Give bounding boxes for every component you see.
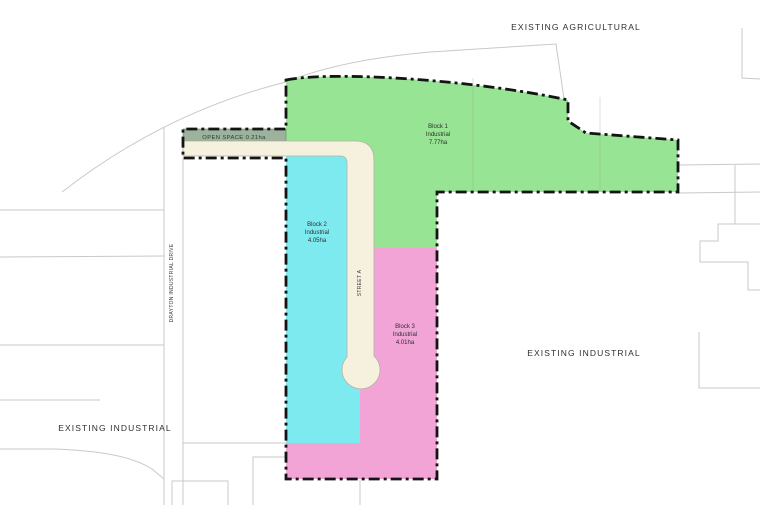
street-a-label: STREET A	[357, 269, 363, 296]
open-space-label: OPEN SPACE 0.21ha	[202, 135, 266, 141]
block2-zoning: Industrial	[305, 230, 329, 236]
block1-label: Block 1 Industrial 7.77ha	[426, 124, 450, 146]
block3-zoning: Industrial	[393, 332, 417, 338]
block1-zoning: Industrial	[426, 132, 450, 138]
block2-label: Block 2 Industrial 4.05ha	[305, 222, 329, 244]
existing-industrial-left-label: EXISTING INDUSTRIAL	[58, 423, 171, 433]
block1-area: 7.77ha	[429, 140, 448, 146]
plan-canvas: EXISTING AGRICULTURAL EXISTING INDUSTRIA…	[0, 0, 760, 505]
block3-area: 4.01ha	[396, 340, 415, 346]
drayton-industrial-drive-label: DRAYTON INDUSTRIAL DRIVE	[169, 243, 175, 322]
block3-name: Block 3	[395, 324, 415, 330]
existing-industrial-right-label: EXISTING INDUSTRIAL	[527, 348, 640, 358]
existing-agricultural-label: EXISTING AGRICULTURAL	[511, 22, 641, 32]
block3-label: Block 3 Industrial 4.01ha	[393, 324, 417, 346]
block1-name: Block 1	[428, 124, 448, 130]
block2-name: Block 2	[307, 222, 327, 228]
subdivision-plan: EXISTING AGRICULTURAL EXISTING INDUSTRIA…	[0, 0, 760, 505]
block2-area: 4.05ha	[308, 238, 327, 244]
